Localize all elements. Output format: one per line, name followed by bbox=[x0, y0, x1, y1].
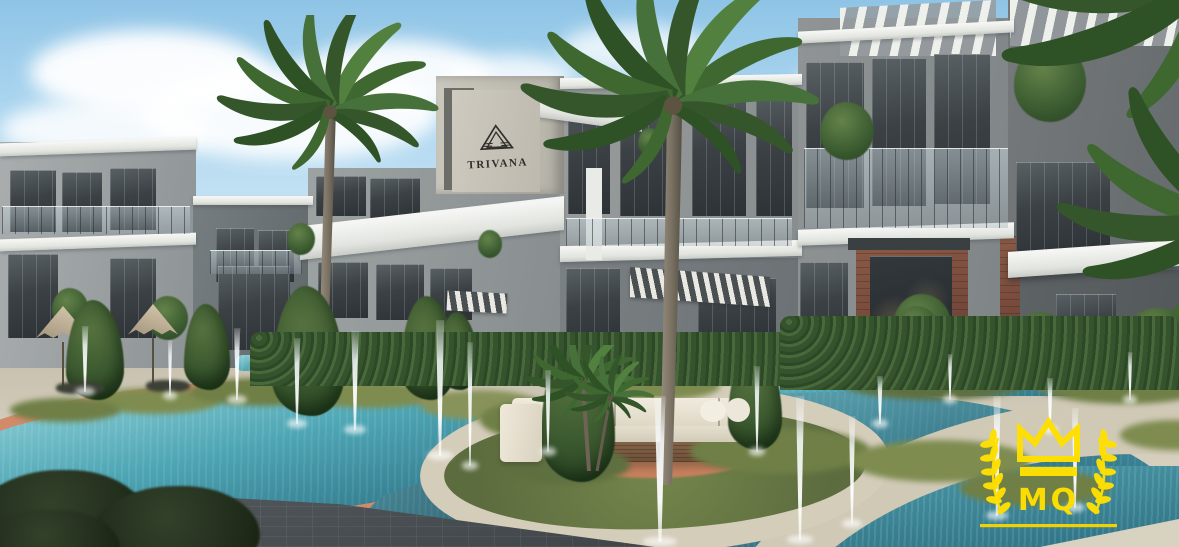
fountain-splash bbox=[163, 391, 177, 400]
compound-render-scene: TRIVANA bbox=[0, 0, 1179, 547]
umbrella-pole bbox=[152, 338, 154, 384]
fountain-splash bbox=[227, 395, 247, 404]
fountain-splash bbox=[75, 387, 95, 396]
fountain-splash bbox=[643, 537, 677, 546]
mq-watermark-underline bbox=[980, 524, 1117, 527]
palm-fronds-top-right bbox=[940, 0, 1179, 400]
striped-awning-left bbox=[447, 290, 508, 313]
fountain-splash bbox=[427, 451, 452, 460]
fountain-splash bbox=[344, 425, 366, 434]
mq-watermark-logo: MQ bbox=[976, 414, 1121, 532]
terrace-plant bbox=[478, 230, 502, 258]
palm-tree-center bbox=[505, 0, 845, 505]
grass-tuft bbox=[10, 398, 120, 422]
fountain-splash bbox=[287, 419, 307, 428]
fountain-splash bbox=[787, 535, 812, 544]
fountain-splash bbox=[842, 519, 862, 528]
building-left-balcony-rail bbox=[2, 206, 190, 234]
mq-watermark-label: MQ bbox=[1018, 483, 1079, 518]
